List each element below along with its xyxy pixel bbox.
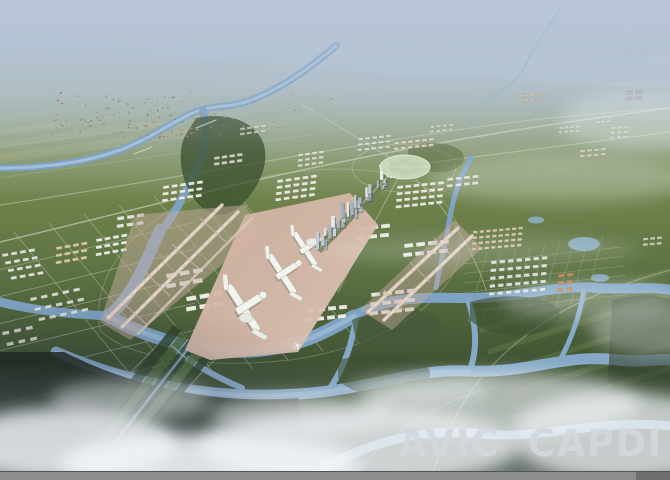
building-block bbox=[188, 188, 194, 192]
building-block bbox=[305, 158, 310, 161]
building-block bbox=[284, 190, 290, 194]
building-block bbox=[294, 177, 300, 181]
building-block bbox=[285, 178, 291, 182]
building-block bbox=[404, 197, 410, 201]
building-block bbox=[489, 284, 495, 288]
building-block bbox=[171, 191, 177, 195]
building-block bbox=[187, 195, 193, 199]
building-block bbox=[541, 272, 547, 276]
building-block bbox=[285, 184, 291, 188]
building-block bbox=[413, 190, 419, 194]
building-block bbox=[490, 268, 496, 272]
building-block bbox=[319, 156, 324, 159]
building-block bbox=[229, 160, 235, 164]
building-block bbox=[396, 192, 402, 196]
building-block bbox=[162, 192, 168, 196]
building-block bbox=[188, 182, 194, 186]
building-block bbox=[650, 243, 655, 246]
building-block bbox=[486, 229, 491, 232]
tower bbox=[354, 195, 356, 208]
watermark-text: AVIC CAPDI bbox=[398, 422, 663, 465]
building-block bbox=[518, 227, 523, 230]
bottom-bar-right-segment bbox=[636, 472, 670, 480]
building-block bbox=[163, 185, 169, 189]
building-block bbox=[301, 188, 307, 192]
building-block bbox=[541, 264, 547, 268]
building-block bbox=[276, 185, 282, 189]
building-block bbox=[498, 283, 504, 287]
building-block bbox=[179, 189, 185, 193]
building-block bbox=[404, 204, 410, 208]
building-block bbox=[516, 266, 522, 270]
building-block bbox=[428, 201, 434, 205]
building-block bbox=[405, 185, 411, 189]
building-block bbox=[300, 194, 306, 198]
building-block bbox=[523, 281, 529, 285]
building-block bbox=[421, 183, 427, 187]
building-block bbox=[275, 198, 281, 202]
building-block bbox=[479, 230, 484, 233]
building-block bbox=[221, 161, 227, 165]
building-block bbox=[293, 189, 299, 193]
building-block bbox=[196, 194, 202, 198]
building-block bbox=[437, 194, 443, 198]
building-block bbox=[489, 292, 495, 296]
tower bbox=[331, 216, 335, 228]
building-block bbox=[533, 265, 539, 269]
building-block bbox=[657, 236, 662, 239]
building-block bbox=[297, 164, 302, 167]
tower bbox=[324, 228, 326, 236]
building-block bbox=[222, 155, 228, 159]
building-block bbox=[421, 189, 427, 193]
building-block bbox=[311, 162, 316, 165]
building-block bbox=[405, 191, 411, 195]
building-block bbox=[643, 243, 648, 246]
building-block bbox=[413, 184, 419, 188]
building-block bbox=[302, 176, 308, 180]
masterplan-scene: ✈ AVIC CAPDI bbox=[0, 0, 670, 480]
building-block bbox=[304, 163, 309, 166]
building-block bbox=[420, 196, 426, 200]
tower bbox=[365, 187, 367, 197]
building-block bbox=[499, 268, 505, 272]
building-block bbox=[179, 196, 185, 200]
building-block bbox=[436, 201, 442, 205]
bottom-bar bbox=[0, 471, 670, 480]
bottom-window-bar bbox=[0, 471, 670, 480]
building-block bbox=[506, 283, 512, 287]
building-block bbox=[532, 273, 538, 277]
building-block bbox=[507, 267, 513, 271]
building-block bbox=[277, 179, 283, 183]
building-block bbox=[170, 197, 176, 201]
circular-park bbox=[380, 155, 430, 179]
building-block bbox=[380, 233, 389, 238]
building-block bbox=[381, 224, 390, 229]
building-block bbox=[127, 215, 134, 219]
building-block bbox=[558, 273, 564, 277]
building-block bbox=[490, 276, 496, 280]
building-block bbox=[309, 187, 315, 191]
building-block bbox=[412, 197, 418, 201]
building-block bbox=[650, 237, 655, 240]
building-block bbox=[309, 193, 315, 197]
building-block bbox=[310, 181, 316, 185]
building-block bbox=[507, 275, 513, 279]
tower bbox=[347, 202, 349, 216]
building-block bbox=[420, 202, 426, 206]
building-block bbox=[511, 233, 516, 236]
tower bbox=[337, 221, 340, 228]
building-block bbox=[311, 174, 317, 178]
building-block bbox=[162, 198, 168, 202]
building-block bbox=[298, 159, 303, 162]
building-block bbox=[512, 227, 517, 230]
building-block bbox=[117, 216, 124, 220]
building-block bbox=[237, 159, 243, 163]
building-block bbox=[276, 191, 282, 195]
building-block bbox=[395, 205, 401, 209]
building-block bbox=[429, 195, 435, 199]
building-block bbox=[197, 180, 203, 184]
building-block bbox=[293, 183, 299, 187]
building-block bbox=[505, 228, 510, 231]
tower bbox=[350, 201, 353, 215]
tower bbox=[321, 234, 324, 246]
building-block bbox=[524, 265, 530, 269]
building-block bbox=[214, 162, 220, 166]
building-block bbox=[518, 232, 523, 235]
building-block bbox=[171, 184, 177, 188]
building-block bbox=[312, 157, 317, 160]
building-block bbox=[473, 231, 478, 234]
building-block bbox=[505, 233, 510, 236]
building-block bbox=[492, 229, 497, 232]
building-block bbox=[499, 228, 504, 231]
building-block bbox=[497, 291, 503, 295]
tower bbox=[340, 201, 343, 217]
tower bbox=[377, 180, 379, 188]
building-block bbox=[180, 183, 186, 187]
building-block bbox=[657, 242, 662, 245]
tower bbox=[316, 232, 319, 250]
building-block bbox=[524, 273, 530, 277]
building-block bbox=[498, 276, 504, 280]
building-block bbox=[283, 196, 289, 200]
tower bbox=[358, 197, 362, 203]
building-block bbox=[214, 156, 220, 160]
tower bbox=[368, 184, 371, 193]
tower bbox=[328, 224, 331, 239]
building-block bbox=[567, 273, 573, 277]
building-block bbox=[429, 188, 435, 192]
aerial-rendering: ✈ AVIC CAPDI bbox=[0, 0, 670, 480]
building-block bbox=[397, 185, 403, 189]
building-block bbox=[292, 195, 298, 199]
building-block bbox=[643, 238, 648, 241]
building-block bbox=[412, 203, 418, 207]
building-block bbox=[117, 224, 124, 228]
building-block bbox=[396, 198, 402, 202]
building-block bbox=[515, 282, 521, 286]
building-block bbox=[302, 182, 308, 186]
building-block bbox=[515, 274, 521, 278]
building-block bbox=[196, 187, 202, 191]
building-block bbox=[532, 280, 538, 284]
building-block bbox=[318, 161, 323, 164]
